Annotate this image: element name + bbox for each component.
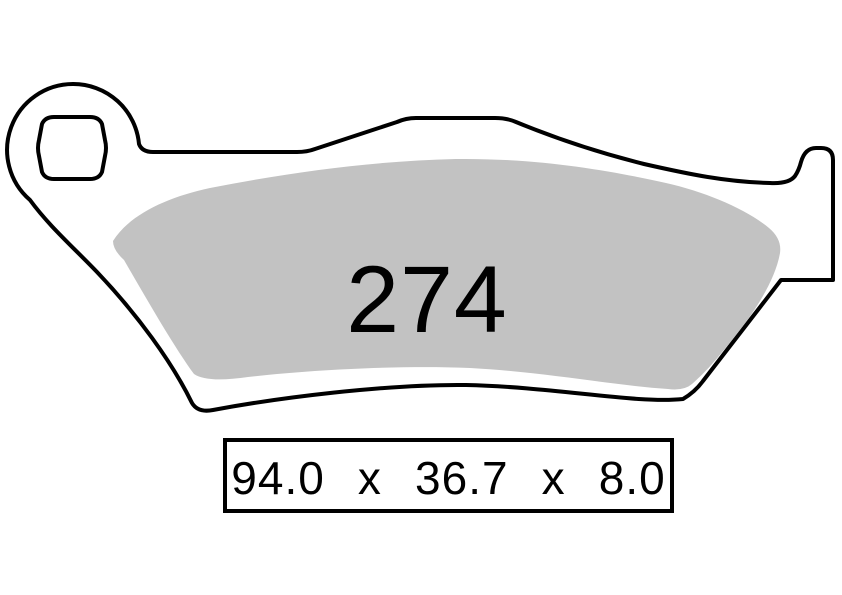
brake-pad-diagram: 274 94.0 x 36.7 x 8.0	[0, 0, 842, 595]
pad-number-label: 274	[346, 247, 508, 353]
dimensions-box: 94.0 x 36.7 x 8.0	[223, 438, 674, 513]
mounting-hole	[38, 117, 106, 179]
dimensions-text: 94.0 x 36.7 x 8.0	[231, 447, 665, 505]
